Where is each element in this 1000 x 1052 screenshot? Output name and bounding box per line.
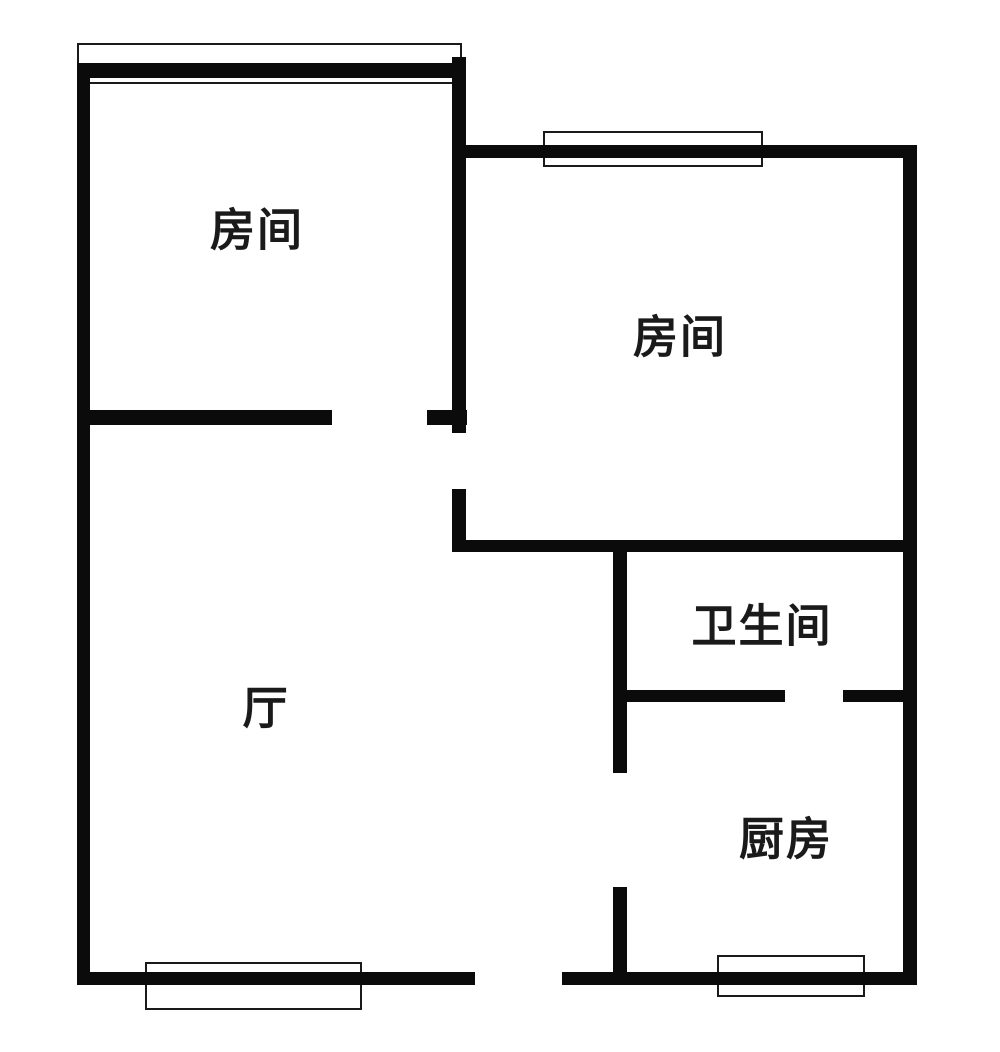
door-opening-entrance	[475, 972, 562, 985]
wall-bathroom-bottom-right	[843, 690, 917, 702]
door-opening-bathroom	[785, 690, 843, 702]
room-label-bedroom-right: 房间	[633, 315, 727, 360]
wall-bathroom-bottom-left	[627, 690, 785, 702]
floor-plan: 房间 房间 卫生间 厅 厨房	[0, 0, 1000, 1052]
wall-bottom-outer-right	[562, 972, 917, 985]
wall-divider-upper	[452, 57, 466, 433]
room-label-bedroom-left: 房间	[210, 208, 304, 253]
wall-left-outer	[77, 63, 90, 985]
door-opening-bedroom-right	[452, 433, 466, 489]
wall-top-bedroom-left	[77, 63, 462, 78]
door-opening-kitchen	[613, 773, 627, 887]
window-living-room-bottom	[145, 962, 362, 1010]
room-label-kitchen: 厨房	[739, 817, 833, 862]
room-label-living-room: 厅	[242, 686, 289, 731]
room-label-bathroom: 卫生间	[691, 604, 832, 649]
wall-bedroom-right-bottom	[452, 540, 917, 552]
wall-top-bedroom-right	[452, 145, 917, 158]
wall-kitchen-left	[613, 887, 627, 985]
wall-bedroom-left-hall	[77, 410, 332, 425]
wall-bathroom-left	[613, 552, 627, 773]
wall-bottom-outer-left	[77, 972, 475, 985]
wall-bedroom-left-hall-tick	[427, 410, 467, 425]
wall-right-outer	[903, 145, 917, 985]
door-opening-bedroom-left	[332, 410, 427, 425]
